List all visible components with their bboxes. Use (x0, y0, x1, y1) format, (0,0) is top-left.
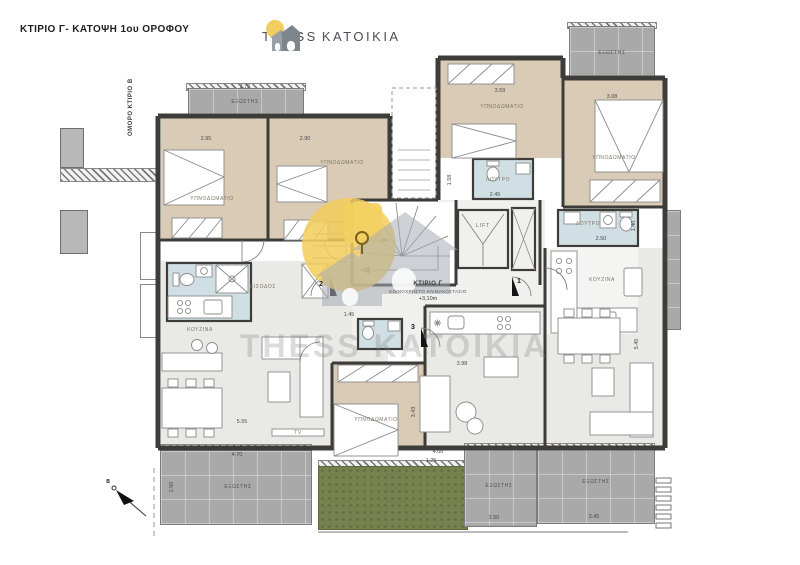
entry-void (392, 88, 436, 198)
dim-3-59: 3.59 (495, 88, 506, 94)
label-bedroom-r1: ΥΠΝΟΔΩΜΑΤΙΟ (480, 104, 523, 110)
core-closet-cross (512, 208, 535, 270)
dim-3-98: 3.98 (457, 361, 468, 367)
core-staircase-label: ΚΟΙΝΟΧΡΗΣΤΟ ΚΛΙΜΑΚΟΣΤΑΣΙΟ (389, 289, 466, 294)
label-kitchen-right: ΚΟΥΖΙΝΑ (589, 277, 615, 283)
label-bedroom-l1: ΥΠΝΟΔΩΜΑΤΙΟ (190, 196, 233, 202)
door-number-3: 3 (411, 324, 415, 331)
dim-1-25: 1.25 (426, 458, 437, 464)
label-hall-left: ΕΙΣΟΔΟΣ (250, 284, 276, 290)
dim-1-58: 1.58 (447, 175, 453, 186)
pergola (656, 478, 671, 528)
label-balcony-bl: ΕΞΩΣΤΗΣ (224, 484, 251, 490)
core-building-label: ΚΤΙΡΙΟ Γ (413, 281, 442, 287)
label-bedroom-mid: ΥΠΝΟΔΩΜΑΤΙΟ (354, 417, 397, 423)
dim-1-40: 1.40 (631, 221, 637, 232)
dim-2-50-b: 2.50 (169, 482, 175, 493)
dim-2-45: 2.45 (490, 192, 501, 198)
dim-1-45: 1.45 (344, 312, 355, 318)
label-bedroom-l2: ΥΠΝΟΔΩΜΑΤΙΟ (320, 160, 363, 166)
door-number-1: 1 (517, 278, 521, 285)
furniture (162, 64, 663, 456)
dim-5-45: 5.45 (634, 339, 640, 350)
dim-3-43: 3.43 (411, 407, 417, 418)
north-label: B (106, 479, 110, 485)
dim-3-75: 3.75 (240, 84, 251, 90)
plan-linework (0, 0, 800, 565)
label-balcony-b2: ΕΞΩΣΤΗΣ (582, 479, 609, 485)
dim-2-95: 2.95 (201, 136, 212, 142)
lift-label: LIFT (476, 223, 490, 229)
dim-2-50-a: 2.50 (596, 236, 607, 242)
label-bedroom-r2: ΥΠΝΟΔΩΜΑΤΙΟ (592, 155, 635, 161)
watermark-sun-square (344, 203, 382, 243)
north-arrow (112, 486, 146, 516)
dim-2-90: 2.90 (300, 136, 311, 142)
label-balcony-tl: ΕΞΩΣΤΗΣ (231, 99, 258, 105)
label-bath-r2: ΛΟΥΤΡΟ (576, 221, 600, 227)
core-level-label: +3,10m (419, 296, 438, 302)
dim-4-00: 4.00 (433, 449, 444, 455)
dim-2-50-c: 2.50 (489, 515, 500, 521)
label-balcony-b1: ΕΞΩΣΤΗΣ (485, 483, 512, 489)
dim-5-55: 5.55 (237, 419, 248, 425)
label-balcony-tr: ΕΞΩΣΤΗΣ (598, 50, 625, 56)
label-tv: TV (294, 430, 302, 436)
watermark-text: THESS KATOIKIA (240, 328, 549, 365)
dim-3-08: 3.08 (607, 94, 618, 100)
label-bath-r1: ΛΟΥΤΡΟ (486, 177, 510, 183)
dim-3-45: 3.45 (589, 514, 600, 520)
door-number-2: 2 (319, 281, 323, 288)
exterior-walls (158, 58, 665, 448)
dim-4-70: 4.70 (232, 452, 243, 458)
lift-symbol (462, 214, 504, 266)
label-kitchen-left: ΚΟΥΖΙΝΑ (187, 327, 213, 333)
entry-steps (398, 150, 430, 190)
floorplan-sheet: ΚΤΙΡΙΟ Γ- ΚΑΤΟΨΗ 1ου ΟΡΟΦΟΥ ΟΜΟΡΟ ΚΤΙΡΙΟ… (0, 0, 800, 565)
